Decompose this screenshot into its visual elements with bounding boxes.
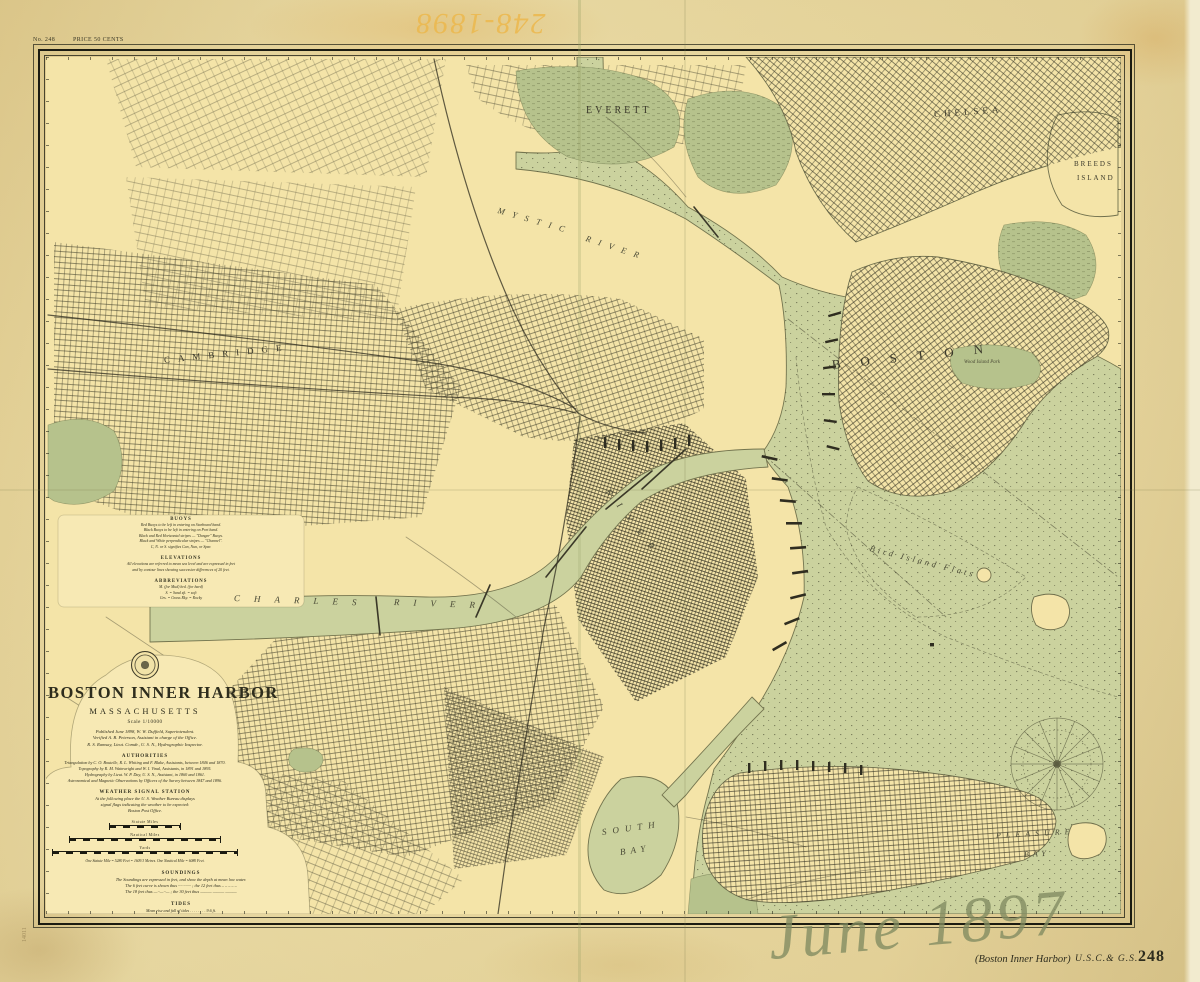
handwritten-catalog-number: 248-1898 [380, 6, 580, 40]
buoys-line: C, N. or S. signifies Can, Nun, or Spar. [62, 545, 300, 550]
paper-edge [1184, 0, 1200, 982]
map-area: EVERETTCHELSEABREEDSISLANDBOSTONWood Isl… [46, 57, 1121, 914]
elevations-lines: All elevations are referred to mean sea … [62, 562, 300, 573]
land-overlays [703, 57, 1122, 903]
wharf-combs [604, 311, 934, 775]
channel-lines [796, 357, 1118, 697]
map-label-bay: BAY [619, 843, 651, 857]
uscgs-seal-icon [131, 651, 159, 679]
breeds-island-land [1047, 112, 1118, 217]
map-label-bird-island-flats: Bird Island Flats [869, 543, 977, 579]
island-flat [1031, 594, 1069, 630]
south-bay [588, 777, 679, 894]
bridges [376, 207, 718, 635]
scale-bar [69, 838, 221, 842]
scale-bar-label: Nautical Miles [48, 833, 242, 837]
plate-price: PRICE 50 CENTS [73, 37, 124, 43]
footer-agency: U.S.C.& G.S. [1075, 954, 1138, 964]
soundings-heading: SOUNDINGS [50, 871, 312, 876]
east-boston-land [839, 256, 1109, 496]
scale-bar-label: Yards [48, 846, 242, 850]
publication-lines: Published June 1898, W. W. Duffield, Sup… [48, 729, 242, 748]
wreck-marker [930, 643, 934, 646]
map-label-cambridge: CAMBRIDGE [163, 342, 289, 365]
map-label-island: ISLAND [1077, 174, 1115, 182]
map-label-chelsea: CHELSEA [934, 104, 1003, 119]
elevations-heading: ELEVATIONS [62, 556, 300, 561]
map-label-boston: BOSTON [831, 339, 1004, 373]
chart-sheet: No. 248 PRICE 50 CENTS 248-1898 [0, 0, 1200, 982]
authority-line: Astronomical and Magnetic Observations b… [48, 778, 242, 784]
publication-line: R. S. Ramsay, Lieut. Comdr., U. S. N., H… [48, 742, 242, 748]
urban-layer-overlays [703, 57, 1122, 903]
border-ticks-top [46, 57, 1121, 60]
weather-heading: WEATHER SIGNAL STATION [48, 790, 242, 795]
map-label-breeds: BREEDS [1074, 160, 1113, 168]
abbreviations-lines: M. (for Mud) hrd. (for hard)S. = Sand sf… [62, 585, 300, 601]
map-label-bay: BAY [1024, 849, 1050, 859]
soundings-lines: The Soundings are expressed in feet, and… [50, 877, 312, 896]
chelsea-land [746, 57, 1121, 242]
tides-lines: Mean rise and fall of tides . . . . . . … [50, 908, 312, 914]
map-label-wood-island-park: Wood Island Park [964, 360, 1000, 365]
authorities-heading: AUTHORITIES [48, 754, 242, 759]
title-cartouche: BOSTON INNER HARBOR MASSACHUSETTS Scale … [48, 651, 242, 863]
map-label-river: RIVER [604, 487, 664, 560]
authorities-lines: Triangulation by C. O. Boutelle, R. L. W… [48, 760, 242, 784]
water-layer [150, 57, 1121, 914]
chart-title: BOSTON INNER HARBOR [48, 683, 242, 703]
scale-bar-row: Nautical Miles [48, 833, 242, 842]
buoys-lines: Red Buoys to be left in entering on Star… [62, 523, 300, 550]
map-label-pleasure: PLEASURE [996, 827, 1075, 840]
elevations-line: and by contour lines showing successive … [62, 568, 300, 573]
weather-lines: At the following place the U. S. Weather… [48, 796, 242, 814]
weather-line: Boston Post Office. [48, 808, 242, 814]
archive-mark: 14011 [22, 927, 28, 942]
abbreviations-heading: ABBREVIATIONS [62, 579, 300, 584]
buoys-heading: BUOYS [62, 517, 300, 522]
map-label-everett: EVERETT [586, 105, 651, 116]
abbreviations-line: Grs. = Grass Rky. = Rocky [62, 596, 300, 601]
map-label-mystic: MYSTIC [497, 205, 574, 236]
scale-footnote: One Statute Mile = 5280 Feet = 1609.3 Me… [48, 859, 242, 863]
boundary-lines [764, 319, 1118, 617]
scale-bar [109, 825, 181, 829]
border-ticks-right [1118, 57, 1121, 914]
plate-number: No. 248 [33, 37, 55, 43]
footer-sheet-number: 248 [1138, 948, 1165, 966]
compass-rose [1011, 718, 1103, 810]
scale-bar-row: Yards [48, 846, 242, 855]
soundings-line: The 18 feet thus —∙∙—∙∙— ; the 30 feet t… [50, 889, 312, 895]
map-label-south: SOUTH [601, 819, 661, 837]
map-label-river: RIVER [394, 597, 489, 610]
fort-point-channel [662, 697, 764, 807]
small-island [977, 568, 991, 582]
scale-note: Scale 1/10000 [48, 720, 242, 725]
scale-bar-label: Statute Miles [48, 820, 242, 824]
soundings-tides-block: SOUNDINGS The Soundings are expressed in… [50, 871, 312, 914]
scale-bar-row: Statute Miles [48, 820, 242, 829]
chart-subtitle: MASSACHUSETTS [48, 706, 242, 716]
wood-island-park [950, 345, 1040, 389]
plate-note: No. 248 PRICE 50 CENTS [33, 37, 140, 43]
tides-heading: TIDES [50, 902, 312, 907]
notes-block: BUOYS Red Buoys to be left in entering o… [62, 517, 300, 602]
map-label-river: RIVER [584, 233, 648, 262]
scale-bars: Statute Miles Nautical Miles Yards [48, 820, 242, 855]
castle-island [1068, 823, 1106, 859]
scale-bar [52, 851, 238, 855]
